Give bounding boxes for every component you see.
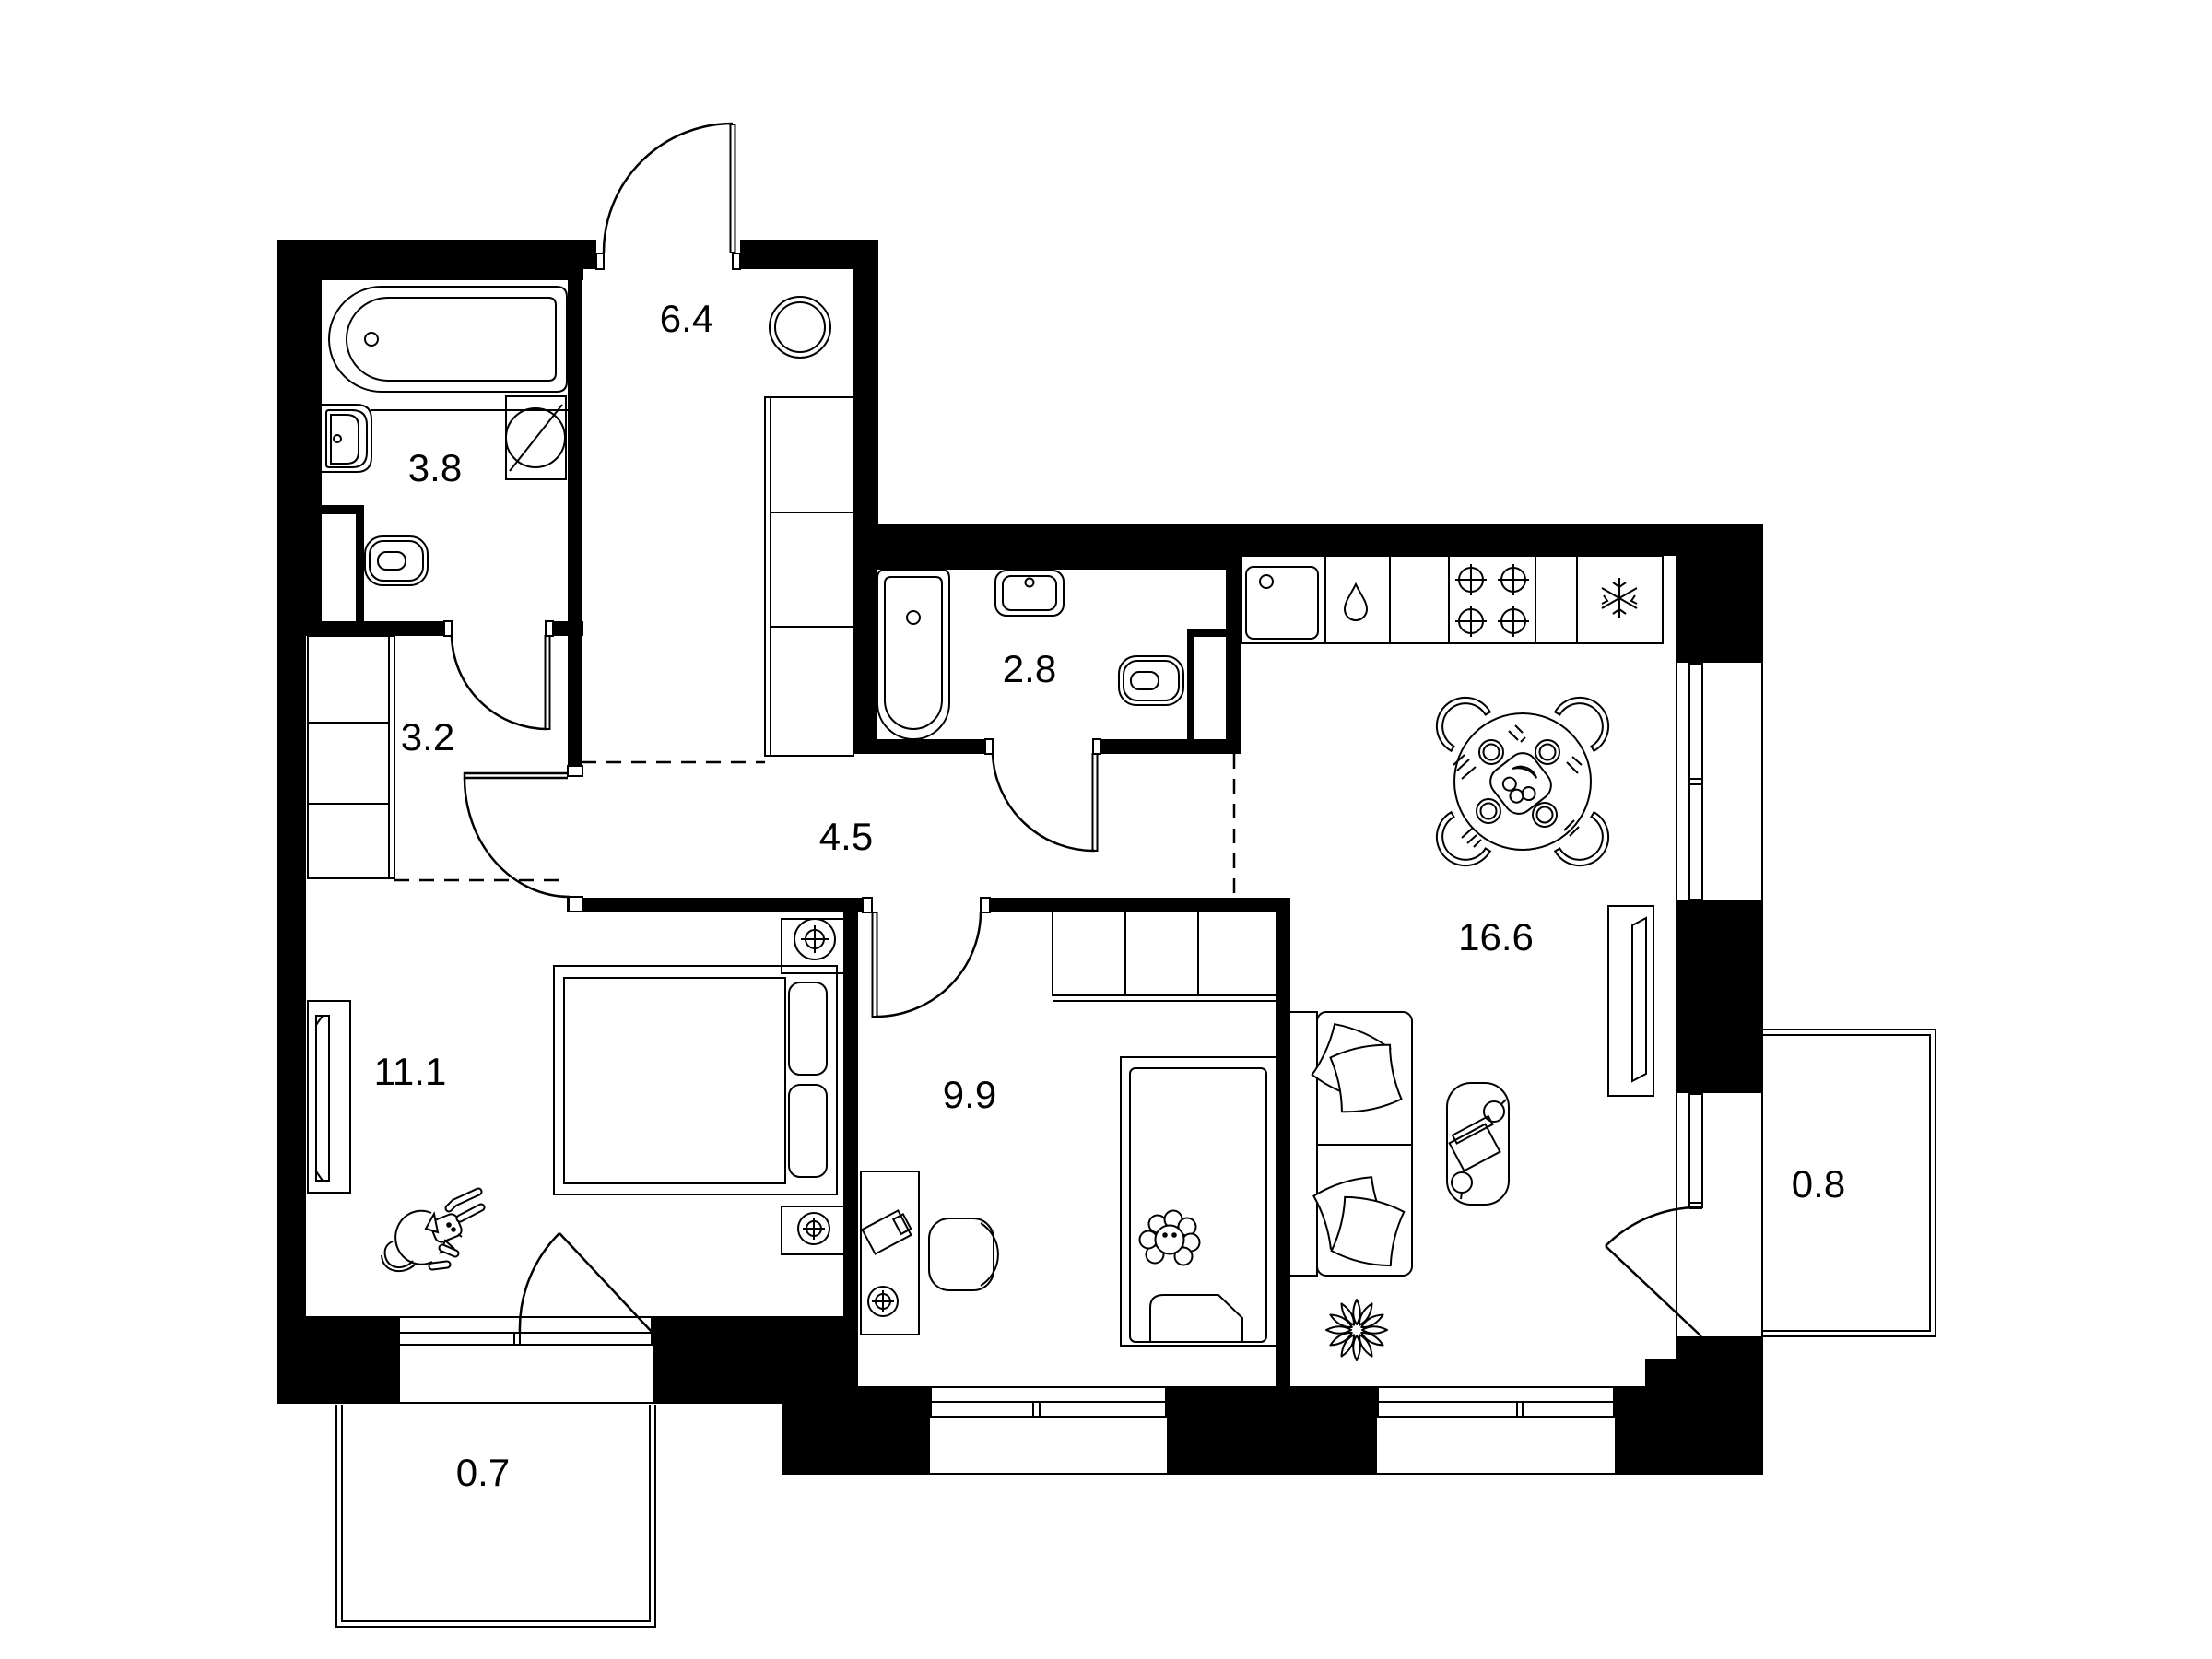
svg-text:3.2: 3.2: [401, 715, 454, 759]
svg-text:2.8: 2.8: [1003, 647, 1056, 690]
svg-text:3.8: 3.8: [408, 446, 462, 489]
svg-text:4.5: 4.5: [819, 815, 873, 858]
svg-text:16.6: 16.6: [1458, 915, 1534, 959]
svg-text:9.9: 9.9: [943, 1073, 996, 1116]
svg-text:11.1: 11.1: [374, 1050, 447, 1093]
svg-text:0.7: 0.7: [456, 1451, 510, 1494]
svg-text:0.8: 0.8: [1792, 1162, 1845, 1206]
svg-text:6.4: 6.4: [660, 297, 713, 340]
